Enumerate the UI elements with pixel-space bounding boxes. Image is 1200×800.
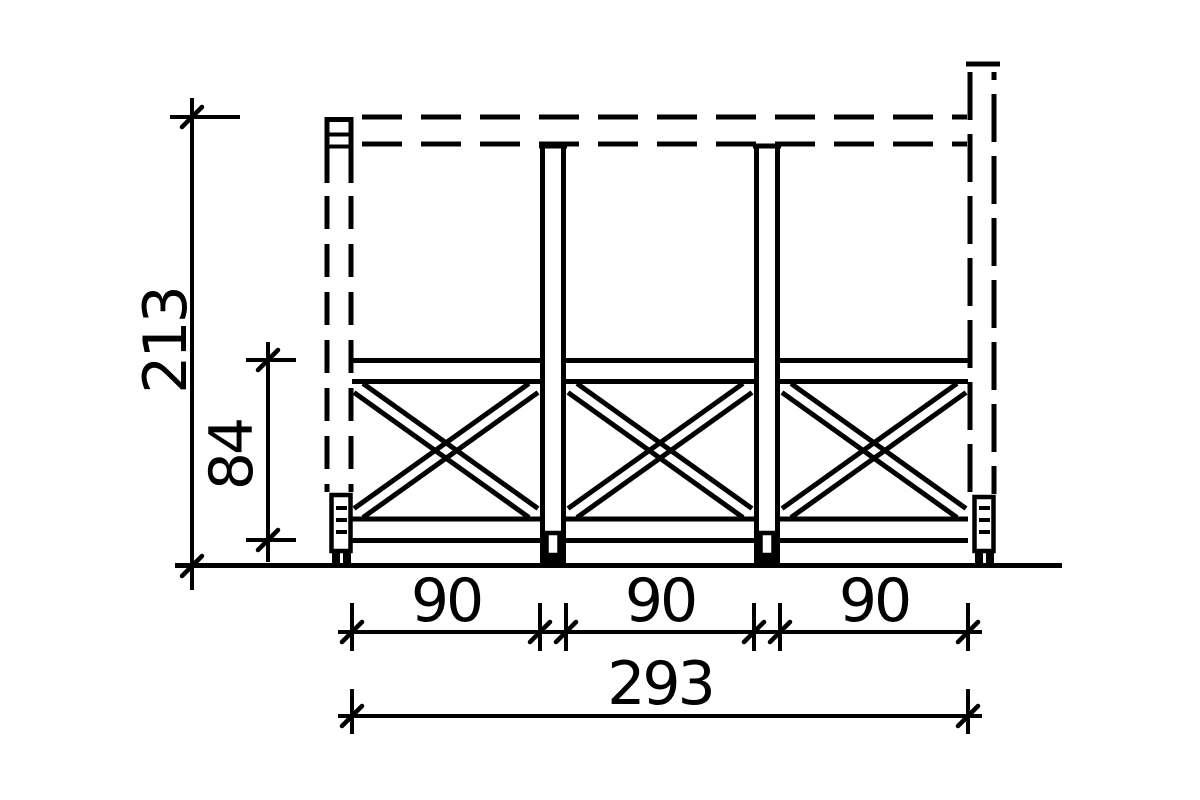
bay3-rising-brace-line-b xyxy=(791,393,966,518)
middle-post-2-body xyxy=(759,146,775,563)
dim-label-bay-2: 90 xyxy=(625,566,695,636)
left-anchor-foot-1 xyxy=(332,551,340,563)
middle-post-2-anchor xyxy=(757,533,777,564)
right-post-anchor xyxy=(975,497,995,563)
railing-elevation-drawing: 213 84 90 90 90 293 xyxy=(0,0,1200,800)
left-rear-post xyxy=(325,117,354,563)
bay2-falling-brace-line-b xyxy=(577,384,752,509)
bay3-falling-brace-line-a xyxy=(782,393,957,518)
right-rear-post xyxy=(966,64,1000,563)
bay1-rising-brace-line-a xyxy=(354,384,529,509)
bay2-rising-brace-line-b xyxy=(577,393,752,518)
dim-label-total-width: 293 xyxy=(607,649,713,719)
cross-brace-bay-1 xyxy=(354,384,538,518)
bay2-falling-brace-line-a xyxy=(568,393,743,518)
middle-post-2 xyxy=(753,146,781,564)
right-anchor-foot-2 xyxy=(986,551,994,563)
cross-brace-bay-2 xyxy=(568,384,752,518)
top-beam-dashed xyxy=(362,117,967,144)
handrail xyxy=(352,361,968,382)
cross-brace-bay-3 xyxy=(782,384,966,518)
dim-label-bay-3: 90 xyxy=(839,566,909,636)
dimension-total-height: 213 xyxy=(131,98,240,590)
bottom-rail xyxy=(352,519,968,541)
dim-label-total-height: 213 xyxy=(131,288,201,394)
dimension-total-width: 293 xyxy=(338,649,982,734)
right-anchor-foot-1 xyxy=(975,551,983,563)
dim-label-railing-height: 84 xyxy=(197,420,267,490)
drawing-canvas: 213 84 90 90 90 293 xyxy=(0,0,1200,800)
left-anchor-bracket xyxy=(332,495,351,551)
right-anchor-bracket xyxy=(975,497,994,551)
bay1-rising-brace-line-b xyxy=(363,393,538,518)
middle-post-1-anchor-box xyxy=(547,533,560,555)
middle-post-1 xyxy=(539,146,567,564)
middle-post-1-anchor-foot xyxy=(543,555,563,564)
middle-post-2-anchor-box xyxy=(761,533,774,555)
bay1-falling-brace-line-a xyxy=(354,393,529,518)
left-anchor-foot-2 xyxy=(343,551,351,563)
dimension-railing-height: 84 xyxy=(197,342,296,562)
middle-post-2-anchor-foot xyxy=(757,555,777,564)
left-post-anchor xyxy=(332,495,352,563)
dimension-bays: 90 90 90 xyxy=(338,566,982,651)
bay1-falling-brace-line-b xyxy=(363,384,538,509)
bay3-rising-brace-line-a xyxy=(782,384,957,509)
middle-post-1-body xyxy=(545,146,561,563)
bay3-falling-brace-line-b xyxy=(791,384,966,509)
dim-label-bay-1: 90 xyxy=(411,566,481,636)
middle-post-1-anchor xyxy=(543,533,563,564)
bay2-rising-brace-line-a xyxy=(568,384,743,509)
